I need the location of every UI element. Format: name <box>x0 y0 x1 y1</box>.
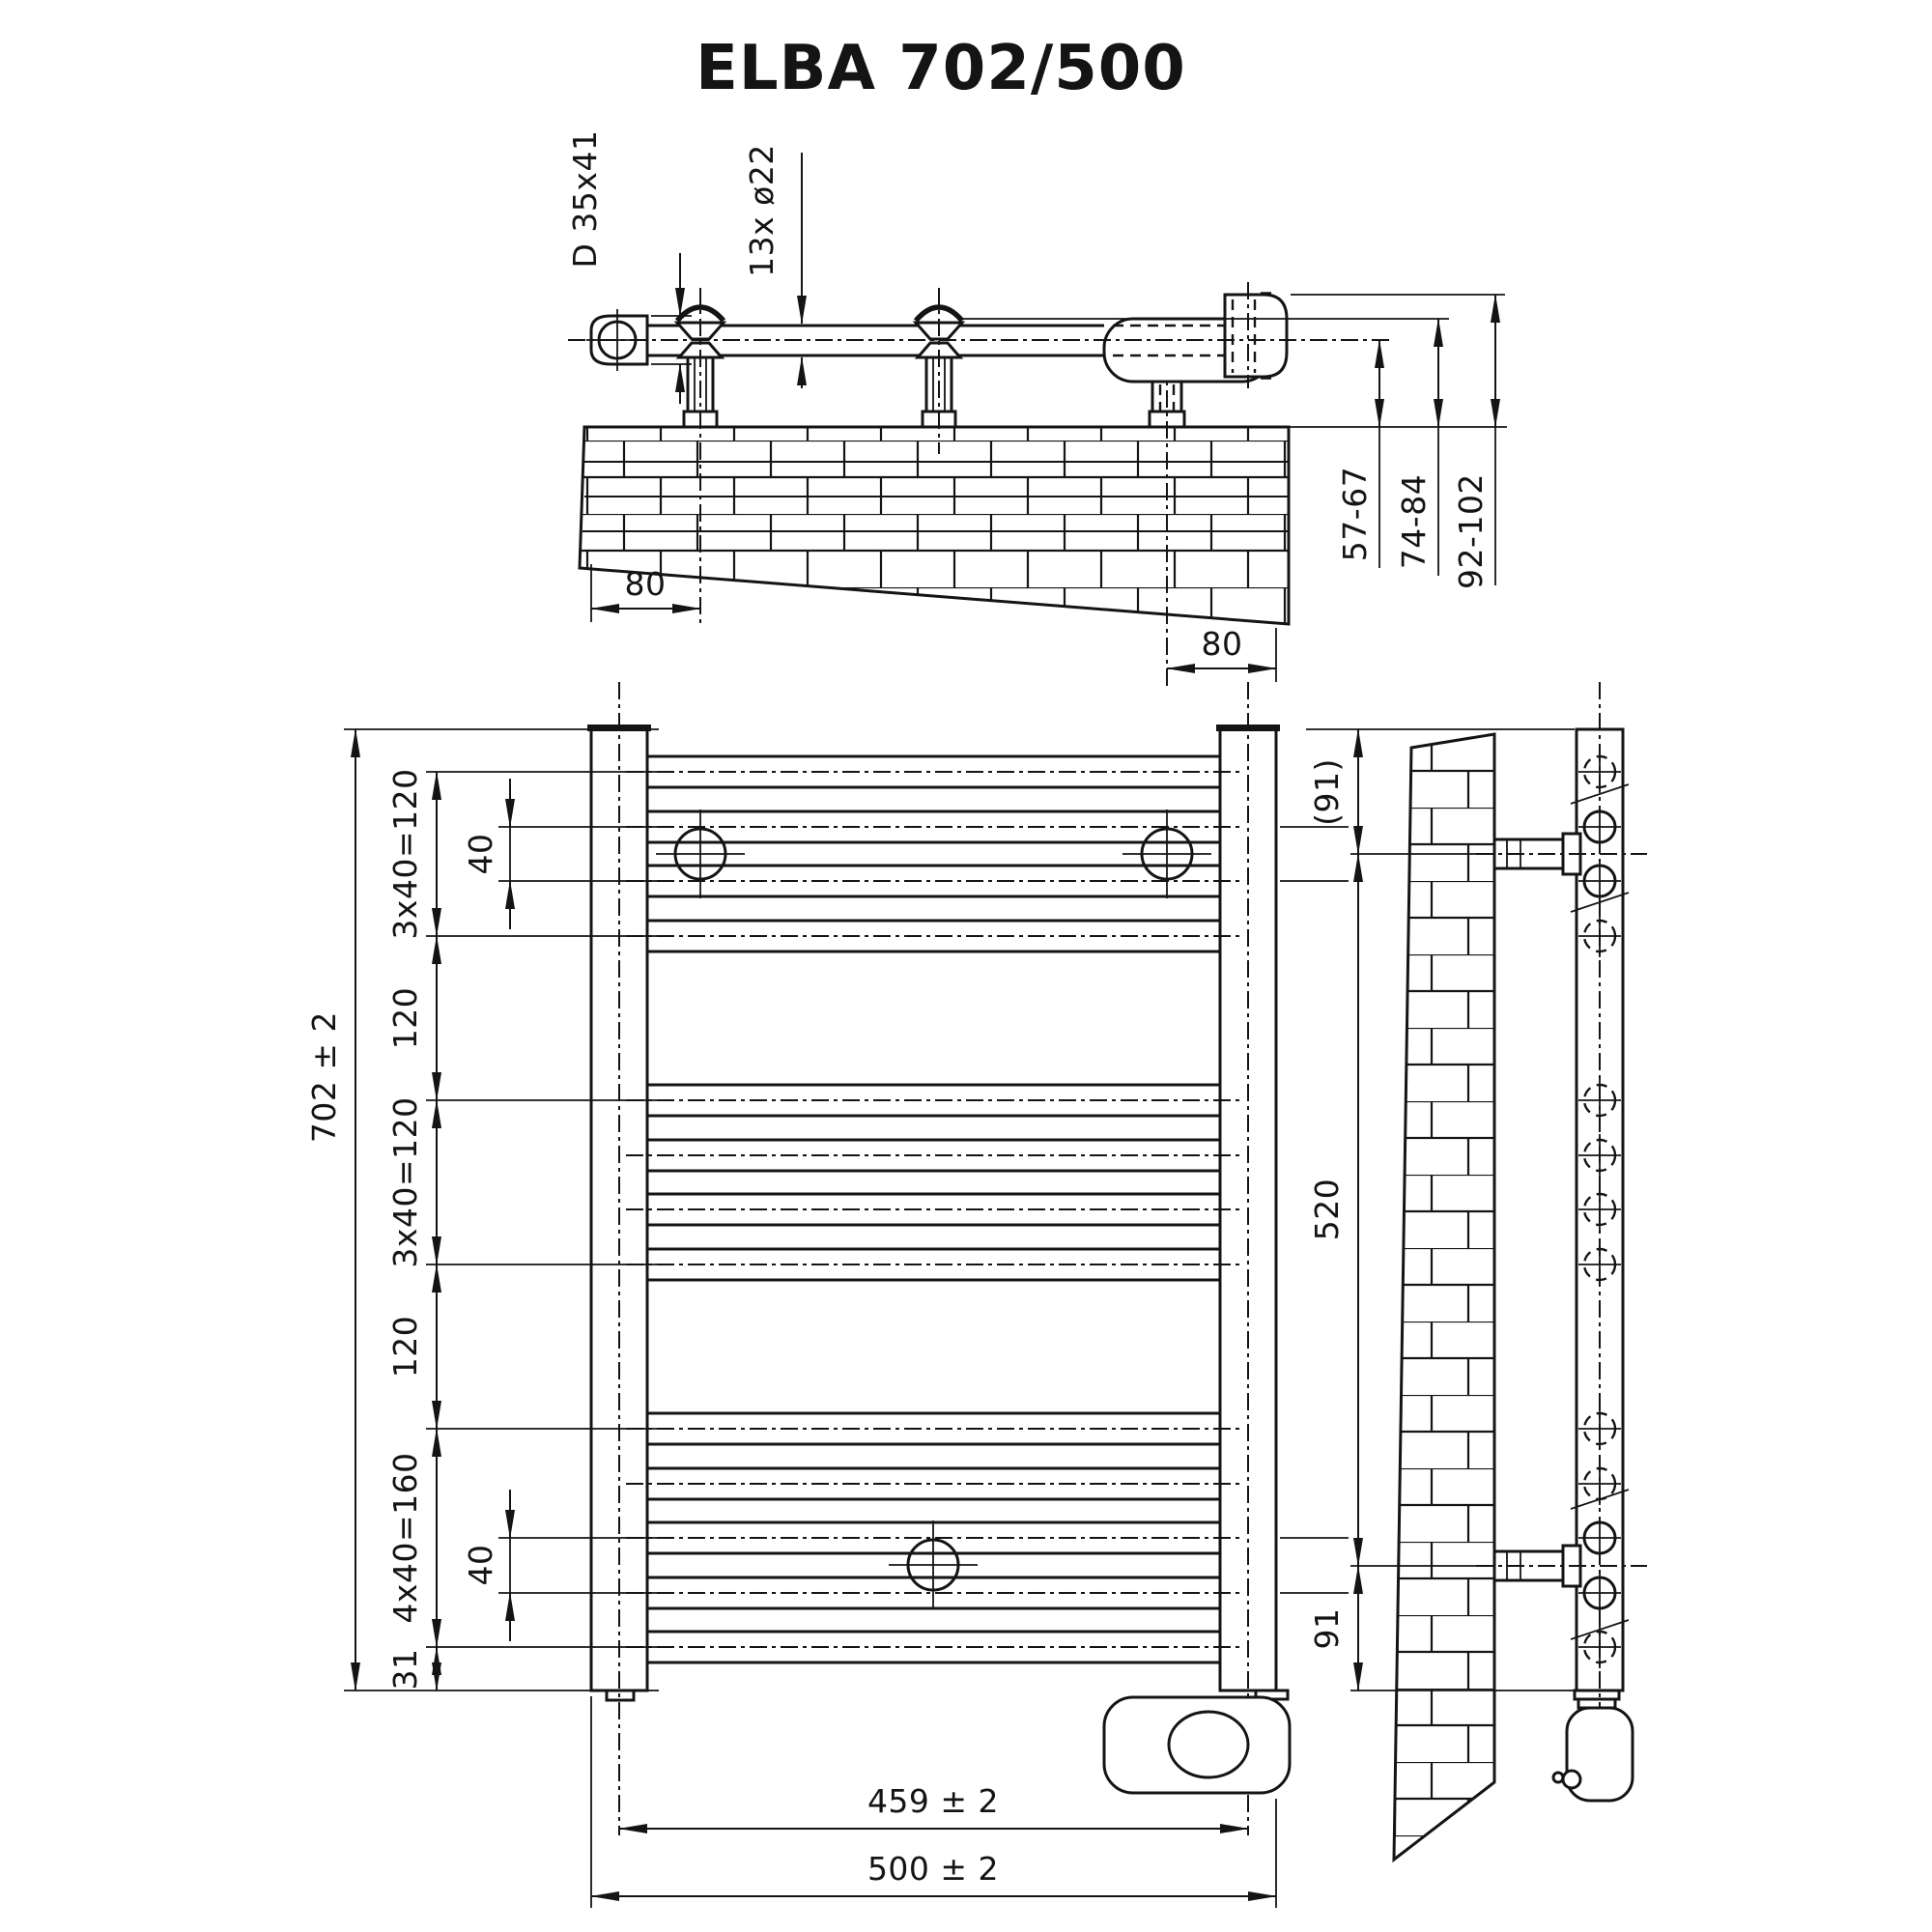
dim-overall-width-label: 500 ± 2 <box>867 1850 999 1888</box>
top-view: D 35x41 13x ø22 80 80 <box>566 130 1507 686</box>
dim-offset-right-label: 80 <box>1202 625 1243 663</box>
bracket-front-upper-left <box>656 810 745 898</box>
dim-bracket-spacing-label: 520 <box>1308 1179 1346 1241</box>
dim-pitch-upper-label: 40 <box>462 834 499 875</box>
dim-connection-spacing-label: 459 ± 2 <box>867 1782 999 1820</box>
front-view: 702 ± 2 3x40=120 120 3x40=120 120 4x40=1… <box>305 682 1349 1908</box>
dim-top-bracket-label: (91) <box>1308 758 1346 826</box>
side-view: (91) 520 91 <box>1306 682 1647 1860</box>
dim-group-bottom-label: 4x40=160 <box>386 1452 424 1623</box>
drawing-page: ELBA 702/500 <box>0 0 1932 1932</box>
bracket-side-lower <box>1350 1517 1647 1614</box>
dim-bottom-margin-label: 31 <box>386 1649 424 1690</box>
dim-tube-count: 13x ø22 <box>743 144 802 388</box>
heating-element-front <box>1104 1690 1290 1793</box>
dim-group-top-label: 3x40=120 <box>386 768 424 939</box>
dim-wall-element-label: 92-102 <box>1452 473 1490 589</box>
dim-wall-housing-label: 74-84 <box>1395 474 1433 569</box>
dim-wall-center-label: 57-67 <box>1336 467 1374 561</box>
dim-profile-label: D 35x41 <box>566 130 604 269</box>
dim-pitch-lower: 40 <box>462 1490 657 1641</box>
dim-gap-lower-label: 120 <box>386 1316 424 1378</box>
dim-group-mid-label: 3x40=120 <box>386 1096 424 1267</box>
dim-pitch-lower-label: 40 <box>462 1545 499 1586</box>
dim-tube-count-label: 13x ø22 <box>743 144 781 277</box>
bracket-front-upper-right <box>1122 810 1211 898</box>
bracket-front-lower <box>889 1520 978 1609</box>
dim-gap-upper-label: 120 <box>386 987 424 1050</box>
dim-pitch-upper: 40 <box>462 779 657 929</box>
heating-element-plan <box>1104 282 1287 388</box>
bracket-side-upper <box>1350 806 1647 902</box>
dim-offset-left-label: 80 <box>625 565 667 603</box>
technical-drawing: ELBA 702/500 <box>0 0 1932 1932</box>
wall-section-top <box>580 427 1289 624</box>
heating-element-side <box>1553 1690 1633 1801</box>
dim-offset-right: 80 <box>1167 625 1276 682</box>
dim-overall-height-label: 702 ± 2 <box>305 1011 343 1143</box>
drawing-title: ELBA 702/500 <box>696 33 1186 104</box>
rungs <box>626 756 1244 1662</box>
dim-bottom-bracket-label: 91 <box>1308 1608 1346 1650</box>
